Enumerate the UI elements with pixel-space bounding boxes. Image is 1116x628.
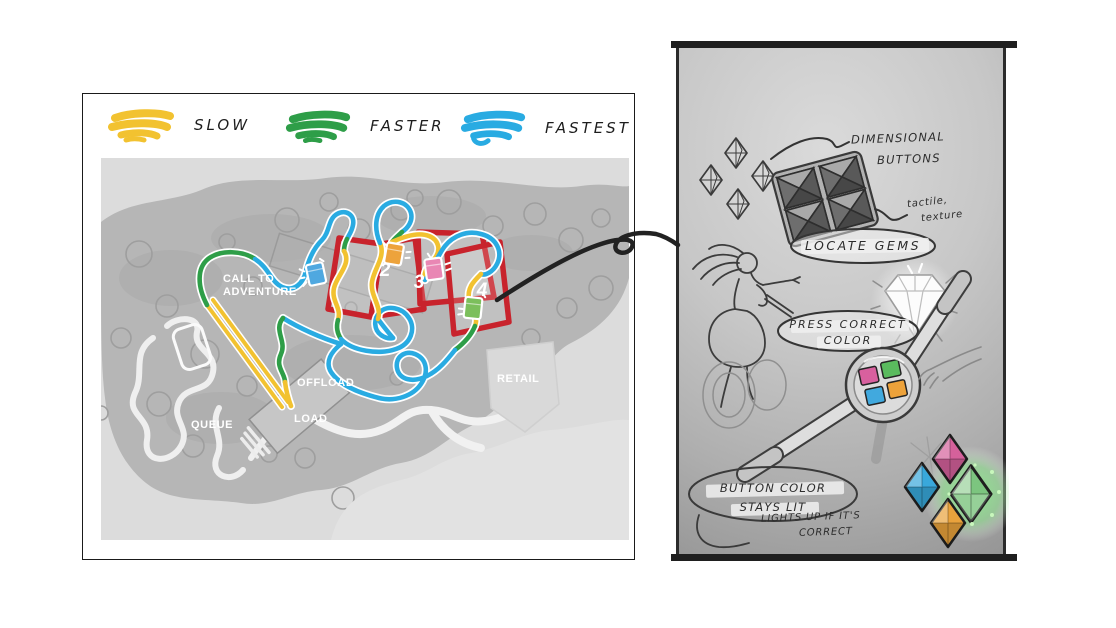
gem-3-number: 3	[414, 272, 425, 293]
rider-vehicle-wheels	[703, 360, 786, 428]
arrow-tactile	[875, 209, 907, 220]
gem-4-number: 4	[476, 280, 488, 301]
concept-board: SLOW FASTER FA	[0, 0, 1116, 628]
gem-2-number: 2	[379, 260, 391, 281]
annotation-press-2: COLOR	[778, 334, 918, 347]
reaching-hand-sketch	[919, 347, 981, 388]
ride-map-panel: SLOW FASTER FA	[82, 93, 635, 560]
legend-label-faster: FASTER	[370, 117, 445, 135]
park-map: 2 3 4 CALL TO ADVENTURE OFFLOAD LOAD QUE…	[101, 158, 629, 540]
legend-item-faster: FASTER	[284, 107, 445, 145]
faster-scribble-icon	[284, 107, 354, 145]
slow-scribble-icon	[106, 106, 178, 144]
label-load: LOAD	[294, 413, 328, 426]
fastest-scribble-icon	[459, 108, 529, 148]
label-call-to-adventure: CALL TO ADVENTURE	[223, 273, 301, 299]
gem-cluster	[905, 435, 1009, 547]
annotation-lights-2: CORRECT	[799, 526, 853, 539]
legend-item-slow: SLOW	[106, 106, 250, 144]
park-map-art: 2 3 4	[101, 158, 629, 540]
legend-label-fastest: FASTEST	[545, 119, 631, 137]
label-offload: OFFLOAD	[297, 377, 354, 390]
panel-bottom-bar	[671, 554, 1017, 561]
annotation-locate-gems: LOCATE GEMS	[793, 238, 933, 253]
diamond-cluster-sketch	[700, 138, 774, 219]
concept-sketch-panel: DIMENSIONAL BUTTONS tactile, texture LOC…	[676, 47, 1006, 557]
annotation-press-1: PRESS CORRECT	[778, 318, 918, 331]
label-queue: QUEUE	[191, 419, 233, 432]
legend-label-slow: SLOW	[194, 116, 250, 134]
legend-item-fastest: FASTEST	[459, 108, 631, 148]
panel-top-bar	[671, 41, 1017, 48]
annotation-dimensional-2: BUTTONS	[877, 151, 941, 167]
annotation-button-color-1: BUTTON COLOR	[693, 481, 853, 495]
label-retail: RETAIL	[497, 373, 540, 386]
